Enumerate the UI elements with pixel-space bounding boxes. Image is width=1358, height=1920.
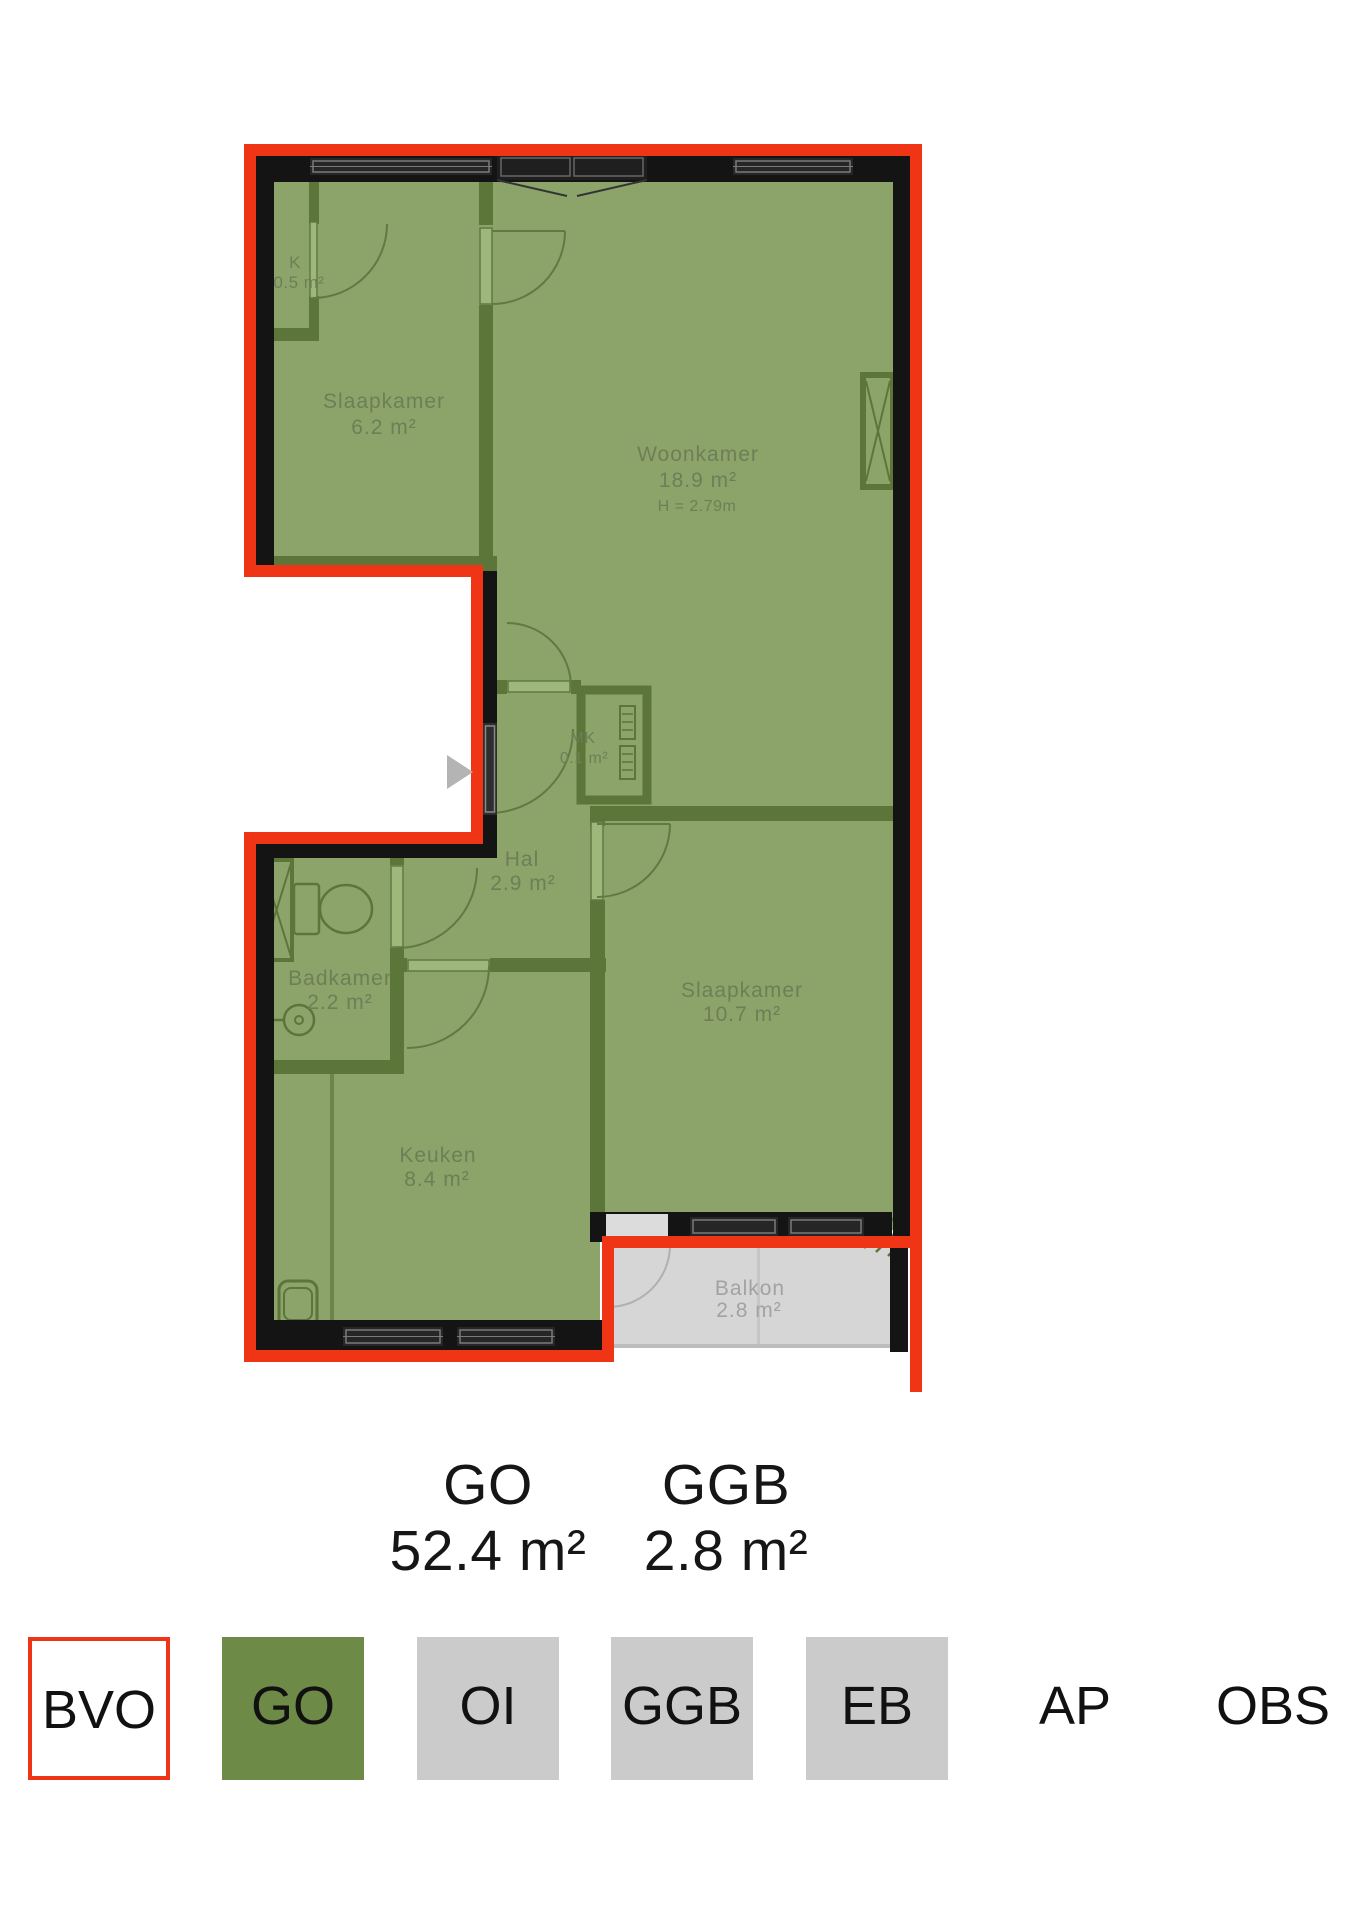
- room-label-hal: Hal: [505, 848, 540, 871]
- wall-hal-woonkamer-left: [497, 680, 507, 694]
- wall-badkamer-top: [250, 843, 497, 858]
- woonkamer-hal-door-leaf: [508, 681, 570, 692]
- summary-ggb: GGB 2.8 m²: [644, 1452, 809, 1584]
- room-area-slaapkamer1: 6.2 m²: [351, 416, 417, 439]
- room-area-badkamer: 2.2 m²: [307, 991, 373, 1014]
- wall-badkamer-right-lower: [390, 948, 404, 1072]
- floorplan-drawing: K 0.5 m² Slaapkamer 6.2 m² Woonkamer 18.…: [0, 0, 1358, 1470]
- room-label-slaapkamer1: Slaapkamer: [323, 390, 445, 413]
- badkamer-door-leaf: [391, 866, 403, 947]
- window-balkon-left: [690, 1217, 778, 1236]
- room-label-badkamer: Badkamer: [288, 967, 392, 990]
- toilet-bowl: [320, 885, 372, 933]
- legend-item-eb: EB: [806, 1637, 948, 1780]
- summary-go: GO 52.4 m²: [390, 1452, 587, 1584]
- summary-ggb-label: GGB: [644, 1452, 809, 1518]
- window-top-left: [310, 158, 492, 175]
- window-balkon-right: [788, 1217, 864, 1236]
- floorplan-page: K 0.5 m² Slaapkamer 6.2 m² Woonkamer 18.…: [0, 0, 1358, 1920]
- summary-go-value: 52.4 m²: [390, 1518, 587, 1584]
- wall-balkon-right: [890, 1236, 908, 1352]
- wall-slaapkamer-woonkamer-upper: [479, 180, 493, 225]
- wall-woonkamer-slaapkamer2: [590, 806, 893, 821]
- slaapkamer2-door-leaf: [591, 822, 603, 900]
- legend-item-ggb: GGB: [611, 1637, 753, 1780]
- window-keuken-right: [457, 1327, 555, 1346]
- summary-go-label: GO: [390, 1452, 587, 1518]
- room-label-slaapkamer2: Slaapkamer: [681, 979, 803, 1002]
- wall-k-right-upper: [309, 180, 319, 224]
- window-top-right: [733, 158, 853, 175]
- room-area-slaapkamer2: 10.7 m²: [703, 1003, 781, 1026]
- room-height-woonkamer: H = 2.79m: [658, 498, 737, 515]
- room-label-balkon: Balkon: [715, 1277, 785, 1300]
- wall-hal-keuken-right: [490, 958, 606, 972]
- room-label-mk: MK: [571, 730, 596, 747]
- legend: BVO GO OI GGB EB AP OBS: [0, 1637, 1358, 1780]
- legend-item-bvo: BVO: [28, 1637, 170, 1780]
- wall-slaapkamer-woonkamer-lower: [479, 305, 493, 571]
- room-area-mk: 0.1 m²: [560, 750, 609, 767]
- room-area-woonkamer: 18.9 m²: [659, 469, 737, 492]
- wall-badkamer-bottom: [264, 1060, 404, 1074]
- room-label-k: K: [289, 253, 301, 272]
- room-area-k: 0.5 m²: [273, 273, 324, 292]
- legend-item-go: GO: [222, 1637, 364, 1780]
- room-area-balkon: 2.8 m²: [716, 1299, 782, 1322]
- room-area-hal: 2.9 m²: [490, 872, 556, 895]
- toilet: [294, 884, 372, 934]
- woonkamer-shaft: [863, 375, 893, 487]
- room-area-keuken: 8.4 m²: [404, 1168, 470, 1191]
- window-keuken-left: [343, 1327, 443, 1346]
- wall-notch-upper: [483, 571, 497, 723]
- keuken-counter-line: [330, 1074, 334, 1320]
- room-label-keuken: Keuken: [399, 1144, 476, 1167]
- legend-item-obs: OBS: [1202, 1637, 1344, 1780]
- summary-ggb-value: 2.8 m²: [644, 1518, 809, 1584]
- entrance-arrow-icon: [447, 755, 473, 789]
- toilet-tank: [294, 884, 319, 934]
- legend-item-oi: OI: [417, 1637, 559, 1780]
- balkon-railing: [604, 1344, 892, 1348]
- woonkamer-top-door-leaf: [480, 228, 492, 304]
- front-door: [483, 723, 497, 815]
- legend-item-ap: AP: [1004, 1637, 1146, 1780]
- wall-slaapkamer2-left-lower: [590, 900, 605, 1212]
- room-label-woonkamer: Woonkamer: [637, 443, 759, 466]
- keuken-door-leaf: [408, 960, 489, 971]
- wall-notch-lower: [483, 815, 497, 845]
